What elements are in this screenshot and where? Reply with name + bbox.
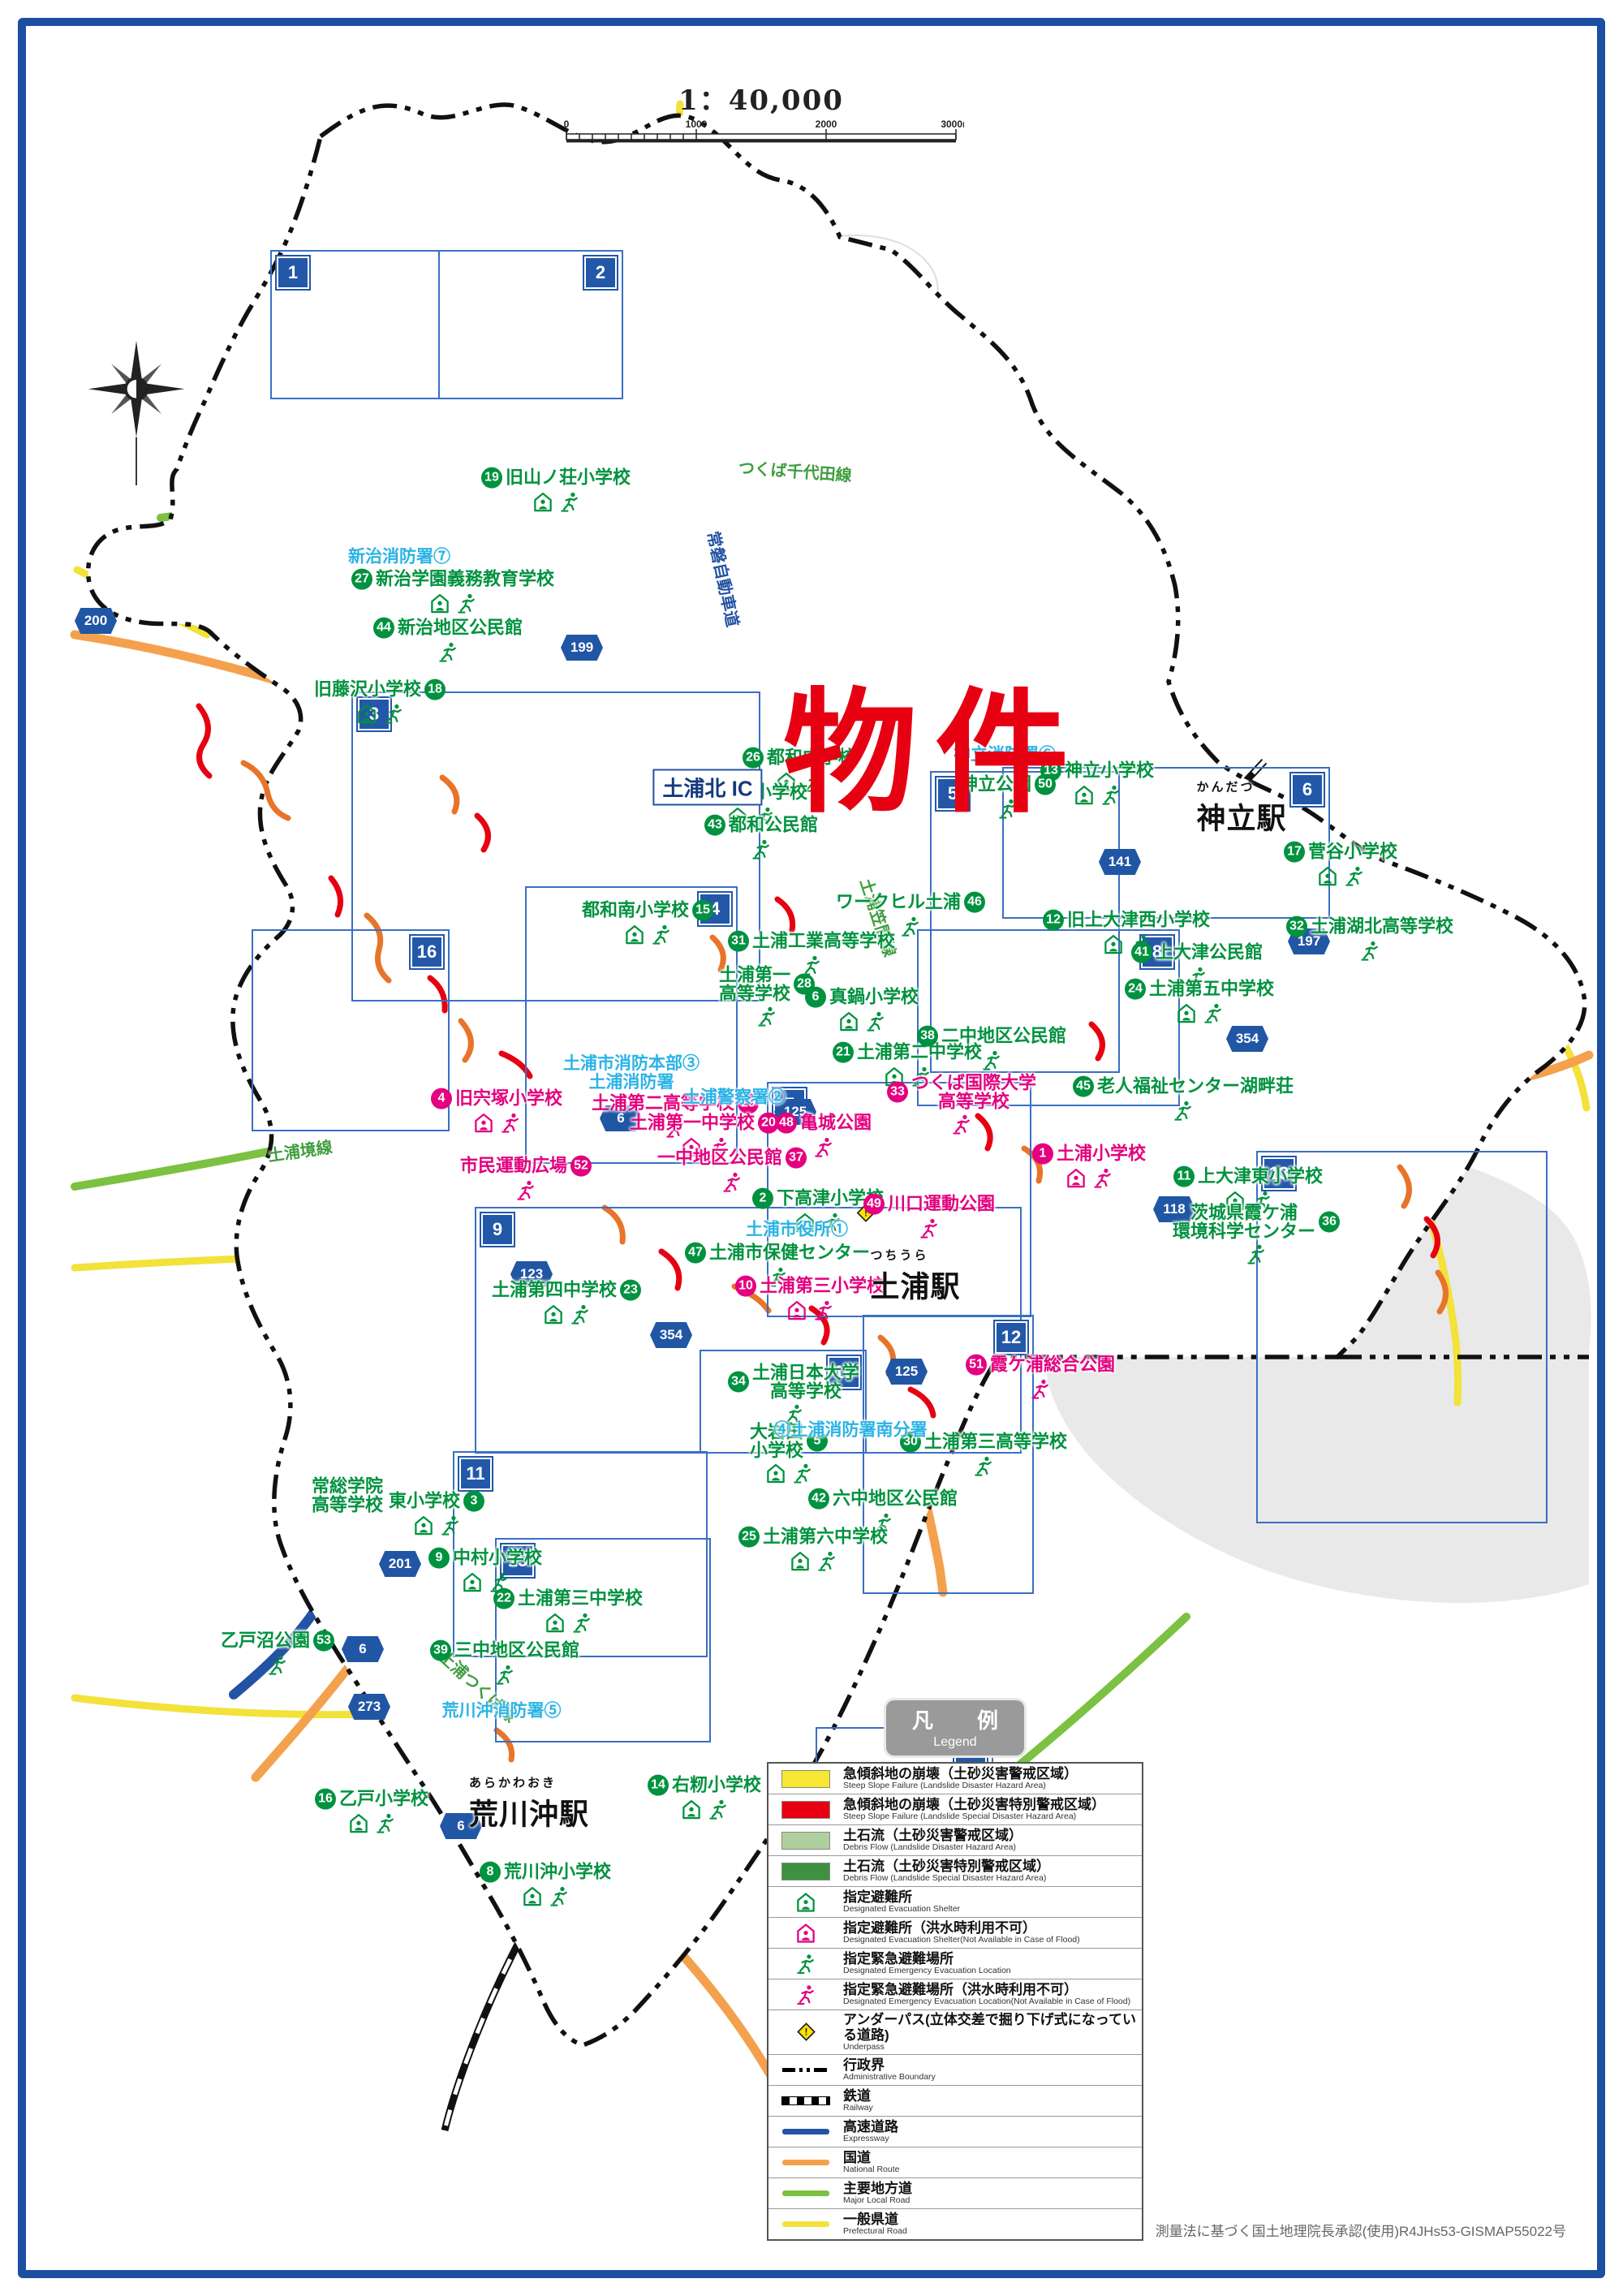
legend-header: 凡 例 Legend [886,1700,1024,1755]
facility-label: 9中村小学校 [428,1548,542,1594]
station-furigana: かんだつ [1196,778,1286,795]
facility-name: 菅谷小学校 [1308,842,1397,861]
shelter-number: 49 [863,1194,885,1215]
facility-name: 上大津東小学校 [1198,1167,1323,1186]
facility-name: 土浦湖北高等学校 [1311,917,1453,936]
legend-item-ja: 主要地方道 [843,2181,1137,2196]
facility-label: 45老人福祉センター湖畔荘 [1073,1076,1294,1122]
legend-item-ja: 土石流（土砂災害特別警戒区域） [843,1859,1137,1874]
legend-item-ja: 高速道路 [843,2119,1137,2134]
legend-item-en: Debris Flow (Landslide Disaster Hazard A… [843,1843,1137,1853]
facility-name: 乙戸小学校 [339,1790,428,1808]
shelter-house-icon [543,1612,566,1635]
facility-label: 常総学院高等学校 [312,1477,383,1514]
shelter-house-icon [411,1514,434,1537]
facility-label: 東小学校3 [389,1491,484,1537]
shelter-number: 39 [430,1640,451,1661]
legend-row: 指定避難所（洪水時利用不可）Designated Evacuation Shel… [768,1917,1142,1948]
shelter-house-icon [355,703,377,726]
shelter-number: 45 [1073,1076,1094,1097]
legend-item-ja: 一般県道 [843,2212,1137,2227]
evacuation-runner-icon [863,1010,886,1033]
shelter-number: 25 [738,1527,760,1548]
legend-table: 急傾斜地の崩壊（土砂災害警戒区域）Steep Slope Failure (La… [767,1762,1143,2241]
shelter-number: 17 [1284,842,1305,863]
shelter-number: 47 [685,1243,706,1264]
station-name: 神立駅 [1196,795,1286,838]
legend-row: 一般県道Prefectural Road [768,2208,1142,2239]
evacuation-runner-icon [950,1114,973,1136]
legend-item-en: Expressway [843,2134,1137,2144]
evacuation-runner-icon [706,1798,729,1821]
facility-label: 8荒川沖小学校 [480,1862,611,1908]
evacuation-runner-icon [721,1171,743,1194]
evacuation-runner-icon [1091,1167,1113,1190]
station-label: あらかわおき荒川沖駅 [469,1774,589,1833]
route-badge-273: 273 [348,1694,390,1720]
legend-swatch-national [782,2160,829,2165]
legend-swatch-steep-special [781,1801,830,1819]
scale-bar: 1：40,000 0 1000 2000 3000m [558,78,964,156]
evacuation-runner-icon [514,1179,537,1202]
station-name: 荒川沖駅 [469,1791,589,1833]
facility-label: 旧藤沢小学校18 [314,679,446,726]
facility-name: 六中地区公民館 [833,1489,958,1508]
facility-label: 土浦第一高等学校28 [719,966,815,1028]
evacuation-runner-icon [568,1303,591,1326]
legend-item-en: Steep Slope Failure (Landslide Disaster … [843,1781,1137,1791]
facility-label: 14右籾小学校 [648,1775,761,1821]
legend-row: 土石流（土砂災害特別警戒区域）Debris Flow (Landslide Sp… [768,1855,1142,1886]
shelter-number: 26 [743,747,764,769]
shelter-number: 53 [313,1630,334,1652]
legend-item-ja: 国道 [843,2150,1137,2165]
legend-item-ja: 鉄道 [843,2088,1137,2104]
evacuation-runner-icon [1172,1100,1195,1122]
shelter-house-icon [622,924,645,946]
shelter-house-icon [1064,1167,1087,1190]
legend-item-ja: 急傾斜地の崩壊（土砂災害警戒区域） [843,1766,1137,1781]
facility-label: 49川口運動公園 [863,1194,995,1240]
evacuation-runner-icon [811,1299,834,1322]
legend-row: 鉄道Railway [768,2085,1142,2116]
facility-name: 土浦工業高等学校 [752,932,895,950]
facility-name: 三中地区公民館 [454,1641,579,1660]
route-badge-141: 141 [1099,849,1141,875]
facility-label: 38二中地区公民館 [917,1026,1066,1072]
facility-label: 39三中地区公民館 [430,1640,579,1686]
facility-label: 一中地区公民館37 [657,1148,807,1194]
shelter-number: 23 [620,1280,641,1301]
shelter-house-icon [837,1010,859,1033]
legend-row: 指定緊急避難場所（洪水時利用不可）Designated Emergency Ev… [768,1979,1142,2010]
facility-name: 川口運動公園 [888,1195,995,1213]
property-overlay-text: 物件 [783,686,1087,820]
legend-title-ja: 凡 例 [886,1704,1024,1734]
facility-name: 乙戸沼公園 [221,1631,310,1650]
facility-name: 市民運動広場 [460,1157,567,1175]
facility-name: 土浦第五中学校 [1149,980,1274,998]
shelter-house-icon [471,1112,494,1135]
shelter-house-icon [347,1812,369,1835]
facility-name: 新治学園義務教育学校 [376,570,554,588]
legend-item-en: Designated Evacuation Shelter [843,1905,1137,1915]
evacuation-runner-icon [1029,1378,1052,1401]
station-furigana: つちうら [870,1247,960,1264]
shelter-house-icon [428,592,450,615]
legend-item-ja: 指定緊急避難場所 [843,1951,1137,1966]
frame-number-1: 1 [277,256,309,289]
evacuation-runner-icon [437,641,459,664]
facility-label: 22土浦第三中学校 [493,1588,643,1635]
legend-item-ja: 指定緊急避難場所（洪水時利用不可） [843,1982,1137,1997]
facility-name: 旧藤沢小学校 [314,680,421,699]
facility-label: 都和南小学校15 [582,900,713,946]
frame-number-11: 11 [459,1458,492,1490]
legend-swatch-major-local [782,2190,829,2196]
legend-swatch-expressway [782,2129,829,2134]
evacuation-runner-icon [980,1049,1003,1072]
evacuation-runner-icon [266,1654,289,1677]
evacuation-runner-icon [454,592,477,615]
fire-police-label: 荒川沖消防署⑤ [442,1701,562,1720]
facility-name: 土浦第六中学校 [763,1527,888,1546]
station-furigana: あらかわおき [469,1774,589,1791]
facility-label: 32土浦湖北高等学校 [1286,916,1453,963]
facility-name: 霞ケ浦総合公園 [990,1355,1115,1374]
shelter-house-icon [794,1891,817,1914]
shelter-number: 12 [1043,910,1064,931]
frame-number-2: 2 [584,256,617,289]
facility-label: 1土浦小学校 [1032,1144,1146,1190]
shelter-house-icon [1315,865,1338,888]
facility-label: 17菅谷小学校 [1284,842,1397,888]
facility-name: 荒川沖小学校 [504,1863,611,1881]
shelter-number: 32 [1286,916,1307,937]
hazard-map-page: { "page": { "scale_label": "1：40,000", "… [0,0,1623,2296]
facility-label: 25土浦第六中学校 [738,1527,888,1573]
shelter-number: 46 [964,892,985,913]
svg-text:1000: 1000 [686,118,708,130]
route-badge-6: 6 [342,1636,384,1662]
legend-row: 行政界Administrative Boundary [768,2054,1142,2085]
facility-label: 茨城県霞ケ浦環境科学センター36 [1173,1204,1340,1266]
legend-row: 指定緊急避難場所Designated Emergency Evacuation … [768,1948,1142,1979]
frame-number-12: 12 [995,1321,1027,1354]
legend-row: 土石流（土砂災害警戒区域）Debris Flow (Landslide Disa… [768,1824,1142,1855]
facility-name: 土浦第三中学校 [518,1589,643,1608]
shelter-number: 36 [1319,1212,1340,1233]
legend-row: 主要地方道Major Local Road [768,2178,1142,2208]
evacuation-runner-icon [918,1217,941,1240]
compass-rose [88,331,185,489]
facility-name: 一中地区公民館 [657,1148,782,1167]
legend-item-en: Major Local Road [843,2196,1137,2206]
legend-swatch-railway [781,2096,830,2105]
route-badge-354: 354 [650,1322,692,1348]
evacuation-runner-icon [649,924,672,946]
legend-item-en: Debris Flow (Landslide Special Disaster … [843,1874,1137,1884]
facility-name: 土浦第四中学校 [492,1281,617,1299]
shelter-house-icon [520,1885,543,1908]
fire-police-label: 土浦市役所① [746,1220,848,1238]
detail-frame-1: 1 [270,250,440,399]
shelter-house-icon [1174,1002,1197,1025]
facility-name: 土浦第三小学校 [760,1277,885,1295]
shelter-number: 20 [758,1113,779,1134]
facility-name: 二中地区公民館 [941,1027,1066,1045]
facility-label: 27新治学園義務教育学校 [351,569,554,615]
shelter-house-icon [679,1798,702,1821]
shelter-number: 37 [786,1148,807,1169]
facility-name: ワークヒル土浦 [836,893,961,911]
shelter-number: 19 [481,467,502,489]
evacuation-runner-icon [812,1136,835,1159]
shelter-number: 4 [431,1088,452,1109]
svg-text:2000: 2000 [816,118,837,130]
route-badge-201: 201 [379,1551,421,1577]
station-label: つちうら土浦駅 [870,1247,960,1306]
shelter-number: 21 [833,1042,854,1063]
facility-name: 中村小学校 [453,1549,542,1567]
evacuation-runner-icon [570,1612,592,1635]
shelter-number: 11 [1173,1166,1195,1187]
shelter-number: 3 [463,1491,484,1512]
station-label: かんだつ神立駅 [1196,778,1286,838]
detail-frame-2: 2 [438,250,623,399]
scale-tick-0: 0 [564,118,570,130]
shelter-number: 31 [728,931,749,952]
legend-swatch-prefectural [782,2221,829,2227]
route-badge-125: 125 [885,1359,928,1385]
evacuation-runner-icon [558,491,580,514]
station-name: 土浦駅 [870,1264,960,1306]
shelter-house-icon [460,1571,483,1594]
legend-row: 指定避難所Designated Evacuation Shelter [768,1886,1142,1917]
legend-item-ja: 土石流（土砂災害警戒区域） [843,1828,1137,1843]
fire-police-label: ④土浦消防署南分署 [774,1420,928,1439]
facility-name: 亀城公園 [800,1114,872,1132]
scale-bar-graphic: 0 1000 2000 3000m [558,118,964,152]
facility-label: 16乙戸小学校 [315,1789,428,1835]
legend-item-en: Designated Emergency Evacuation Location… [843,1997,1137,2007]
facility-name: 土浦日本大学高等学校 [752,1363,859,1401]
route-badge-354: 354 [1226,1026,1268,1052]
facility-name: 右籾小学校 [672,1776,761,1794]
legend-item-ja: 指定避難所 [843,1889,1137,1905]
legend-item-en: Steep Slope Failure (Landslide Special D… [843,1812,1137,1822]
evacuation-runner-icon [815,1550,837,1573]
facility-name: 土浦第一高等学校 [719,966,790,1003]
shelter-number: 51 [966,1355,987,1376]
evacuation-runner-icon [750,838,773,861]
route-badge-199: 199 [561,635,603,661]
evacuation-runner-icon [1245,1243,1268,1266]
facility-label: 乙戸沼公園53 [221,1630,334,1677]
evacuation-runner-icon [493,1664,516,1686]
evacuation-runner-icon [498,1112,521,1135]
facility-label: 10土浦第三小学校 [735,1276,885,1322]
facility-label: 土浦第四中学校23 [492,1280,641,1326]
shelter-number: 44 [373,618,394,639]
evacuation-runner-icon [794,1984,817,2006]
facility-label: 44新治地区公民館 [373,618,523,664]
facility-name: 老人福祉センター湖畔荘 [1097,1077,1294,1096]
evacuation-runner-icon [381,703,404,726]
shelter-number: 33 [887,1082,908,1103]
legend-item-en: Underpass [843,2043,1137,2053]
facility-label: 6真鍋小学校 [805,987,919,1033]
legend-row: !アンダーパス(立体交差で掘り下げ式になっている道路)Underpass [768,2010,1142,2054]
legend-panel: 凡 例 Legend 急傾斜地の崩壊（土砂災害警戒区域）Steep Slope … [767,1700,1143,2241]
legend-swatch-debris-warning [781,1832,830,1850]
evacuation-runner-icon [1099,784,1121,807]
facility-name: 常総学院高等学校 [312,1477,383,1514]
facility-name: 土浦小学校 [1057,1144,1146,1163]
legend-row: 急傾斜地の崩壊（土砂災害警戒区域）Steep Slope Failure (La… [768,1764,1142,1794]
facility-name: 土浦第一中学校 [630,1114,755,1132]
detail-frame-16: 16 [252,929,450,1131]
facility-label: 24土浦第五中学校 [1125,979,1274,1025]
shelter-number: 1 [1032,1144,1053,1165]
legend-item-en: Designated Emergency Evacuation Location [843,1966,1137,1976]
evacuation-runner-icon [373,1812,396,1835]
facility-name: 茨城県霞ケ浦環境科学センター [1173,1204,1315,1241]
facility-label: 4旧宍塚小学校 [431,1088,562,1135]
shelter-house-icon [788,1550,811,1573]
legend-swatch-steep-warning [781,1770,830,1788]
legend-title-en: Legend [886,1735,1024,1750]
facility-name: 東小学校 [389,1492,460,1510]
evacuation-runner-icon [1342,865,1365,888]
shelter-number: 10 [735,1276,756,1297]
legend-row: 急傾斜地の崩壊（土砂災害特別警戒区域）Steep Slope Failure (… [768,1794,1142,1824]
shelter-number: 27 [351,569,372,590]
evacuation-runner-icon [899,915,922,938]
evacuation-runner-icon [438,1514,461,1537]
fire-police-label: 土浦市消防本部③土浦消防署 [563,1054,700,1092]
shelter-number: 14 [648,1775,669,1796]
svg-text:3000m: 3000m [941,118,964,130]
fire-police-label: 新治消防署⑦ [348,547,450,566]
shelter-house-icon [794,1922,817,1945]
legend-item-ja: 急傾斜地の崩壊（土砂災害特別警戒区域） [843,1797,1137,1812]
evacuation-runner-icon [756,1006,778,1028]
facility-label: 33つくば国際大学高等学校 [887,1074,1036,1136]
shelter-number: 24 [1125,979,1146,1000]
tsuchiura-kita-ic-label: 土浦北 IC [652,769,762,806]
scale-ratio-label: 1：40,000 [558,78,964,118]
facility-label: 市民運動広場52 [460,1156,592,1202]
shelter-number: 16 [315,1789,336,1810]
legend-item-ja: 行政界 [843,2057,1137,2073]
legend-row: 国道National Route [768,2147,1142,2178]
shelter-house-icon [1101,933,1124,956]
legend-swatch-admin-boundary [782,2068,829,2072]
frame-number-6: 6 [1291,773,1324,806]
underpass-icon: ! [795,2021,817,2043]
evacuation-runner-icon [547,1885,570,1908]
legend-item-en: Designated Evacuation Shelter(Not Availa… [843,1936,1137,1945]
legend-row: 高速道路Expressway [768,2116,1142,2147]
facility-name: 上大津公民館 [1156,943,1263,962]
facility-name: 旧宍塚小学校 [455,1089,562,1108]
fire-police-label: 土浦警察署② [683,1088,786,1106]
shelter-number: 6 [805,987,826,1008]
svg-text:!: ! [804,2027,807,2038]
facility-name: 土浦第三高等学校 [924,1432,1067,1451]
facility-name: 新治地区公民館 [398,618,523,637]
shelter-house-icon [531,491,553,514]
shelter-house-icon [785,1299,807,1322]
shelter-number: 8 [480,1862,501,1883]
facility-name: 都和南小学校 [582,901,689,920]
legend-item-en: Railway [843,2104,1137,2113]
evacuation-runner-icon [794,1953,817,1975]
shelter-number: 22 [493,1588,514,1609]
shelter-number: 9 [428,1548,450,1569]
legend-item-en: Administrative Boundary [843,2073,1137,2083]
shelter-number: 42 [808,1488,829,1510]
evacuation-runner-icon [1358,940,1381,963]
shelter-number: 43 [704,815,725,836]
legend-item-en: National Route [843,2165,1137,2175]
facility-name: 土浦市保健センター [709,1243,870,1262]
shelter-number: 15 [692,900,713,921]
facility-name: 真鍋小学校 [829,988,919,1006]
shelter-number: 38 [917,1026,938,1047]
facility-name: つくば国際大学高等学校 [911,1074,1036,1111]
shelter-house-icon [764,1462,786,1485]
facility-label: 19旧山ノ荘小学校 [481,467,631,514]
shelter-number: 52 [570,1156,592,1177]
legend-item-en: Prefectural Road [843,2227,1137,2237]
facility-name: 旧上大津西小学校 [1067,911,1210,929]
evacuation-runner-icon [972,1455,995,1478]
legend-item-ja: 指定避難所（洪水時利用不可） [843,1920,1137,1936]
facility-label: 34土浦日本大学高等学校 [728,1363,859,1426]
frame-number-16: 16 [411,936,443,968]
facility-name: 旧山ノ荘小学校 [506,468,631,487]
legend-swatch-debris-special [781,1863,830,1880]
legend-item-ja: アンダーパス(立体交差で掘り下げ式になっている道路) [843,2012,1137,2043]
route-badge-200: 200 [75,608,117,634]
shelter-number: 41 [1131,942,1152,963]
facility-label: 51霞ケ浦総合公園 [966,1355,1115,1401]
shelter-number: 18 [424,679,446,700]
shelter-number: 34 [728,1372,749,1393]
evacuation-runner-icon [790,1462,813,1485]
evacuation-runner-icon [1201,1002,1224,1025]
gsi-attribution: 測量法に基づく国土地理院長承認(使用)R4JHs53-GISMAP55022号 [1156,2220,1566,2240]
shelter-house-icon [541,1303,564,1326]
frame-number-9: 9 [481,1213,514,1246]
